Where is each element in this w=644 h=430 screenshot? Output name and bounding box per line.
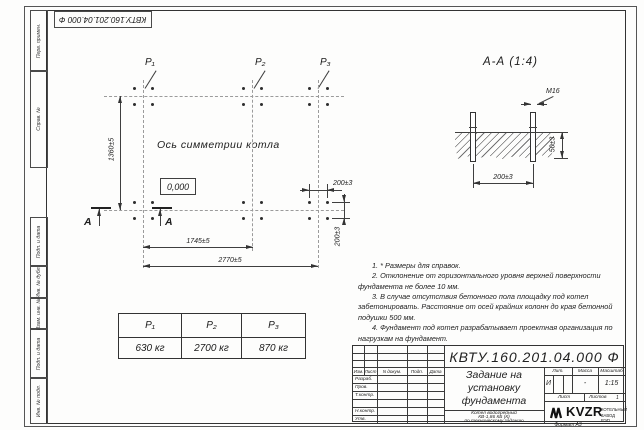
centerline <box>104 96 344 97</box>
dim-200-horizontal: 200±3 <box>333 180 352 187</box>
technical-notes: 1. * Размеры для справок. 2. Отклонение … <box>358 261 616 344</box>
strip-cell-inv-podl: Инв. № подл. <box>30 377 48 424</box>
doc-title-line-1: Задание на <box>444 369 544 381</box>
doc-subtitle-line-3: по техническому заданию <box>444 419 544 424</box>
anchor-dot <box>242 87 245 90</box>
dimension-line <box>332 218 350 219</box>
plan-point-label-p2: P₂ <box>255 57 265 68</box>
note-4: 4. Фундамент под котел разрабатывает про… <box>358 323 616 344</box>
row-tkontr: Т.контр. <box>355 393 374 398</box>
logo-caption-line-2: ЗАВОД РЭП <box>601 413 623 423</box>
dimension-arrow <box>311 264 318 268</box>
doc-title-line-2: установку <box>444 382 544 394</box>
centerline <box>104 210 344 211</box>
dim-200-vertical: 200±3 <box>335 217 342 257</box>
anchor-dot <box>151 201 154 204</box>
dimension-line <box>309 184 310 198</box>
col-ndocum: N докум. <box>377 369 407 374</box>
strip-cell-vzam-inv: Взам. инв. № <box>30 297 48 330</box>
anchor-dot <box>151 217 154 220</box>
anchor-dot <box>133 87 136 90</box>
dimension-arrow <box>342 218 346 225</box>
lit-value: И <box>544 380 553 387</box>
dim-200-section: 200±3 <box>481 174 525 181</box>
dimension-line <box>554 158 568 159</box>
section-cut-bar <box>152 207 172 209</box>
mass-value: - <box>572 380 598 387</box>
load-header-p1: P₁ <box>119 314 182 338</box>
dimension-arrow <box>342 195 346 202</box>
strip-cell-podp-data-2: Подп. и дата <box>30 328 48 379</box>
level-mark-value: 0,000 <box>167 182 189 192</box>
centerline <box>143 80 144 268</box>
sheets-label: Листов <box>589 395 606 400</box>
top-designation-box: КВТУ.160.201.04.000 Ф <box>54 11 152 28</box>
dim-1360: 1360±5 <box>109 126 116 174</box>
section-cut-bar <box>91 207 111 209</box>
dim-2770: 2770±5 <box>208 257 252 264</box>
anchor-dot <box>133 217 136 220</box>
col-izm: Изм. <box>353 369 364 374</box>
dimension-line <box>455 132 554 133</box>
section-letter-right: А <box>165 216 173 228</box>
drawing-sheet: КВТУ.160.201.04.000 Ф Перв. примен. Спра… <box>0 0 644 430</box>
dimension-arrow <box>97 209 101 216</box>
boiler-symmetry-axis-label: Ось симметрии котла <box>157 139 280 151</box>
anchor-dot <box>326 87 329 90</box>
strip-cell-perv-primen: Перв. примен. <box>30 10 48 72</box>
dimension-arrow <box>560 132 564 139</box>
format-label: Формат А3 <box>545 422 591 428</box>
doc-title-line-3: фундамента <box>444 395 544 407</box>
strip-cell-inv-dubl: Инв. № дубл. <box>30 265 48 299</box>
dimension-line <box>529 127 537 128</box>
dimension-line <box>533 164 534 188</box>
anchor-bolt-right <box>530 112 536 162</box>
section-title: А-А (1:4) <box>483 56 538 68</box>
dimension-arrow <box>473 181 480 185</box>
dimension-arrow <box>560 151 564 158</box>
scale-header: Масштаб <box>598 369 625 374</box>
note-1: 1. * Размеры для справок. <box>358 261 616 271</box>
anchor-dot <box>242 201 245 204</box>
dimension-arrow <box>158 209 162 216</box>
bolt-thread-label: М16 <box>546 88 560 95</box>
anchor-dot <box>151 87 154 90</box>
row-prov: Пров. <box>355 385 368 390</box>
col-data: Дата <box>427 369 444 374</box>
title-block: КВТУ.160.201.04.000 Ф Изм. Лист N докум.… <box>352 345 624 422</box>
logo-caption-line-1: КОТЕЛЬНЫЙ <box>601 407 627 412</box>
sheet-label: Лист <box>544 395 584 400</box>
note-3: 3. В случае отсутствия бетонного пола пл… <box>358 292 616 323</box>
anchor-dot <box>326 217 329 220</box>
anchor-bolt-left <box>470 112 476 162</box>
row-utv: Утв. <box>355 417 366 422</box>
dimension-arrow <box>246 245 253 249</box>
kvzr-logo-text: KVZR <box>566 404 603 419</box>
anchor-dot <box>308 87 311 90</box>
titleblock-designation: КВТУ.160.201.04.000 Ф <box>444 349 625 365</box>
dimension-arrow <box>524 102 531 106</box>
strip-cell-sprav-n: Справ. № <box>30 70 48 168</box>
anchor-dot <box>260 103 263 106</box>
anchor-dot <box>308 103 311 106</box>
anchor-dot <box>242 103 245 106</box>
dimension-line <box>332 202 350 203</box>
dimension-line <box>143 247 253 248</box>
dimension-arrow <box>537 102 544 106</box>
row-nkontr: Н.контр. <box>355 409 375 414</box>
load-header-p2: P₂ <box>182 314 242 338</box>
scale-value: 1:15 <box>598 380 625 387</box>
dimension-arrow <box>327 188 334 192</box>
anchor-dot <box>260 217 263 220</box>
dimension-arrow <box>118 96 122 103</box>
load-value-p3: 870 кг <box>242 338 306 359</box>
anchor-dot <box>133 103 136 106</box>
col-podp: Подп. <box>407 369 427 374</box>
dimension-line <box>143 266 318 267</box>
strip-cell-podp-data-1: Подп. и дата <box>30 217 48 267</box>
mass-header: Масса <box>572 369 598 374</box>
row-razrab: Разраб. <box>355 377 372 382</box>
anchor-dot <box>151 103 154 106</box>
load-value-p1: 630 кг <box>119 338 182 359</box>
dimension-arrow <box>143 264 150 268</box>
dimension-line <box>469 127 477 128</box>
dimension-arrow <box>143 245 150 249</box>
dim-1745: 1745±5 <box>176 238 220 245</box>
anchor-dot <box>326 103 329 106</box>
plan-point-label-p1: P₁ <box>145 57 155 68</box>
anchor-dot <box>308 201 311 204</box>
plan-point-label-p3: P₃ <box>320 57 331 68</box>
anchor-dot <box>260 201 263 204</box>
sheets-value: 1 <box>616 395 619 401</box>
dimension-arrow <box>118 203 122 210</box>
load-table: P₁ P₂ P₃ 630 кг 2700 кг 870 кг <box>118 313 306 359</box>
top-designation-text: КВТУ.160.201.04.000 Ф <box>59 15 146 24</box>
anchor-dot <box>326 201 329 204</box>
load-table-value-row: 630 кг 2700 кг 870 кг <box>119 338 306 359</box>
anchor-dot <box>133 201 136 204</box>
section-letter-left: А <box>84 216 92 228</box>
centerline <box>318 80 319 268</box>
dimension-arrow <box>302 188 309 192</box>
level-mark-box: 0,000 <box>160 178 196 195</box>
note-2: 2. Отклонение от горизонтального уровня … <box>358 271 616 292</box>
anchor-dot <box>308 217 311 220</box>
centerline <box>252 80 253 251</box>
load-value-p2: 2700 кг <box>182 338 242 359</box>
dimension-line <box>473 183 533 184</box>
lit-header: Лит. <box>544 369 572 374</box>
anchor-dot <box>260 87 263 90</box>
anchor-dot <box>242 217 245 220</box>
dimension-arrow <box>526 181 533 185</box>
col-list: Лист <box>364 369 377 374</box>
load-table-header-row: P₁ P₂ P₃ <box>119 314 306 338</box>
load-header-p3: P₃ <box>242 314 306 338</box>
dimension-line <box>120 96 121 210</box>
